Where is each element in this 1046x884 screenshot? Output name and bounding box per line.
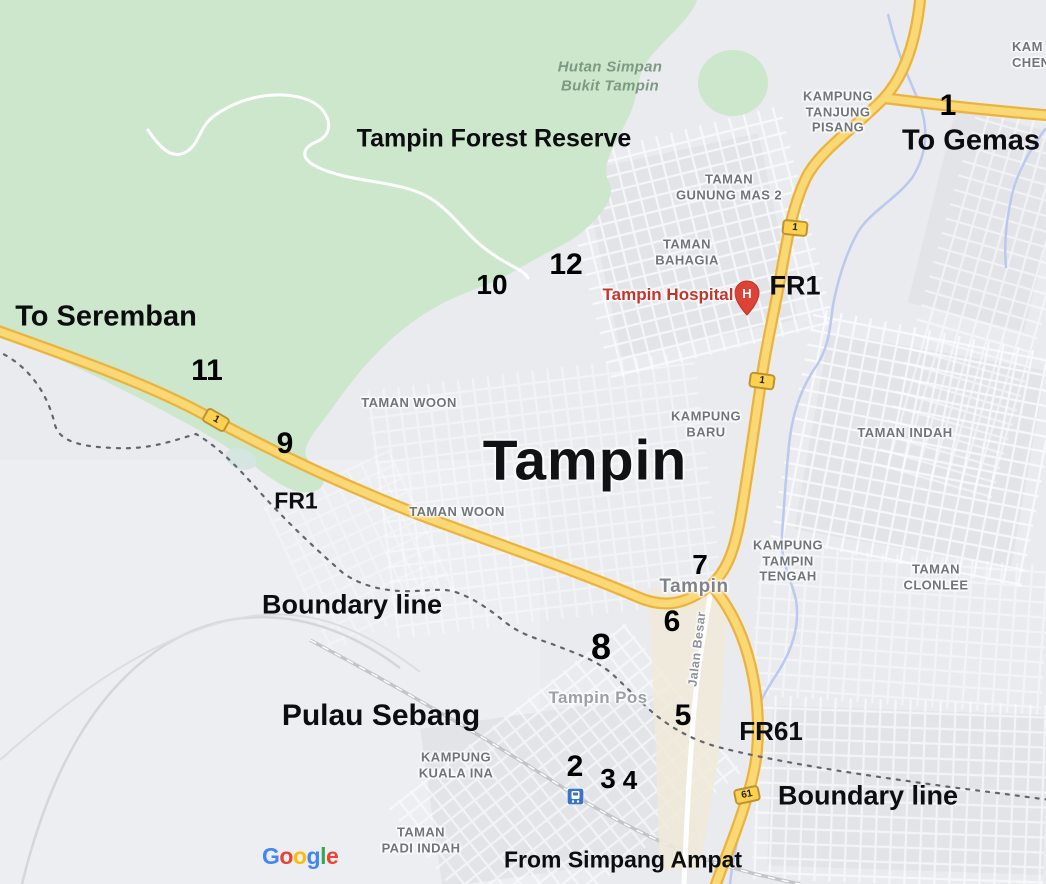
annotation-fr1-right: FR1 — [769, 273, 820, 300]
marker-number-7: 7 — [692, 551, 708, 579]
annotation-fr1-left: FR1 — [274, 490, 317, 513]
marker-number-8: 8 — [591, 629, 611, 665]
map-canvas[interactable]: 1 1 1 61 H KAMPUNG TANJUNG PISANG KAM CH… — [0, 0, 1046, 884]
annotation-boundary-line-left: Boundary line — [262, 592, 442, 619]
marker-number-6: 6 — [664, 607, 681, 637]
marker-number-1: 1 — [940, 91, 957, 121]
marker-number-10: 10 — [476, 271, 507, 299]
poi-label-tampin-pos: Tampin Pos — [548, 688, 647, 708]
marker-number-5: 5 — [675, 701, 692, 731]
area-label-kampung-tampin-tengah: KAMPUNG TAMPIN TENGAH — [753, 538, 823, 585]
marker-number-9: 9 — [277, 429, 294, 459]
route-shield-1-south: 1 — [748, 371, 776, 390]
area-label-taman-padi-indah: TAMAN PADI INDAH — [382, 824, 461, 855]
area-label-taman-woon-south: TAMAN WOON — [409, 504, 504, 520]
google-logo-letter: o — [279, 843, 293, 870]
marker-number-2: 2 — [567, 752, 584, 782]
marker-number-3: 3 — [600, 765, 616, 793]
annotation-boundary-line-right: Boundary line — [778, 783, 958, 810]
annotation-forest-reserve: Tampin Forest Reserve — [357, 127, 632, 152]
svg-text:H: H — [742, 286, 751, 301]
marker-number-12: 12 — [549, 250, 582, 280]
area-label-kampung-tanjung-pisang: KAMPUNG TANJUNG PISANG — [803, 89, 873, 136]
google-logo[interactable]: Google — [262, 843, 338, 870]
annotation-to-gemas: To Gemas — [902, 127, 1040, 156]
google-logo-letter: g — [307, 843, 321, 870]
hospital-pin-icon[interactable]: H — [734, 280, 760, 316]
annotation-to-seremban: To Seremban — [15, 303, 197, 332]
forest-patch — [698, 50, 768, 116]
google-logo-letter: o — [293, 843, 307, 870]
annotation-fr61: FR61 — [739, 718, 803, 744]
google-logo-letter: G — [262, 843, 279, 870]
annotation-pulau-sebang: Pulau Sebang — [282, 701, 480, 731]
area-label-taman-gunung-mas-2: TAMAN GUNUNG MAS 2 — [676, 171, 782, 202]
route-shield-1-mid: 1 — [781, 219, 809, 238]
annotation-from-simpang-ampat: From Simpang Ampat — [504, 849, 742, 872]
area-label-kampung-kuala-ina: KAMPUNG KUALA INA — [419, 749, 494, 780]
marker-number-4: 4 — [623, 767, 637, 793]
area-label-kam-chen: KAM CHEN — [1012, 39, 1046, 70]
area-label-taman-woon-north: TAMAN WOON — [361, 395, 456, 411]
annotation-city-tampin: Tampin — [483, 433, 687, 490]
train-station-icon[interactable] — [567, 788, 584, 805]
area-label-taman-bahagia: TAMAN BAHAGIA — [655, 236, 718, 267]
marker-number-11: 11 — [191, 356, 223, 386]
area-label-taman-indah: TAMAN INDAH — [857, 425, 952, 441]
poi-label-tampin-hospital[interactable]: Tampin Hospital — [603, 285, 734, 305]
google-logo-letter: e — [326, 843, 338, 870]
forest-label-hutan-simpan: Hutan Simpan Bukit Tampin — [558, 58, 662, 96]
area-label-taman-clonlee: TAMAN CLONLEE — [881, 561, 991, 592]
